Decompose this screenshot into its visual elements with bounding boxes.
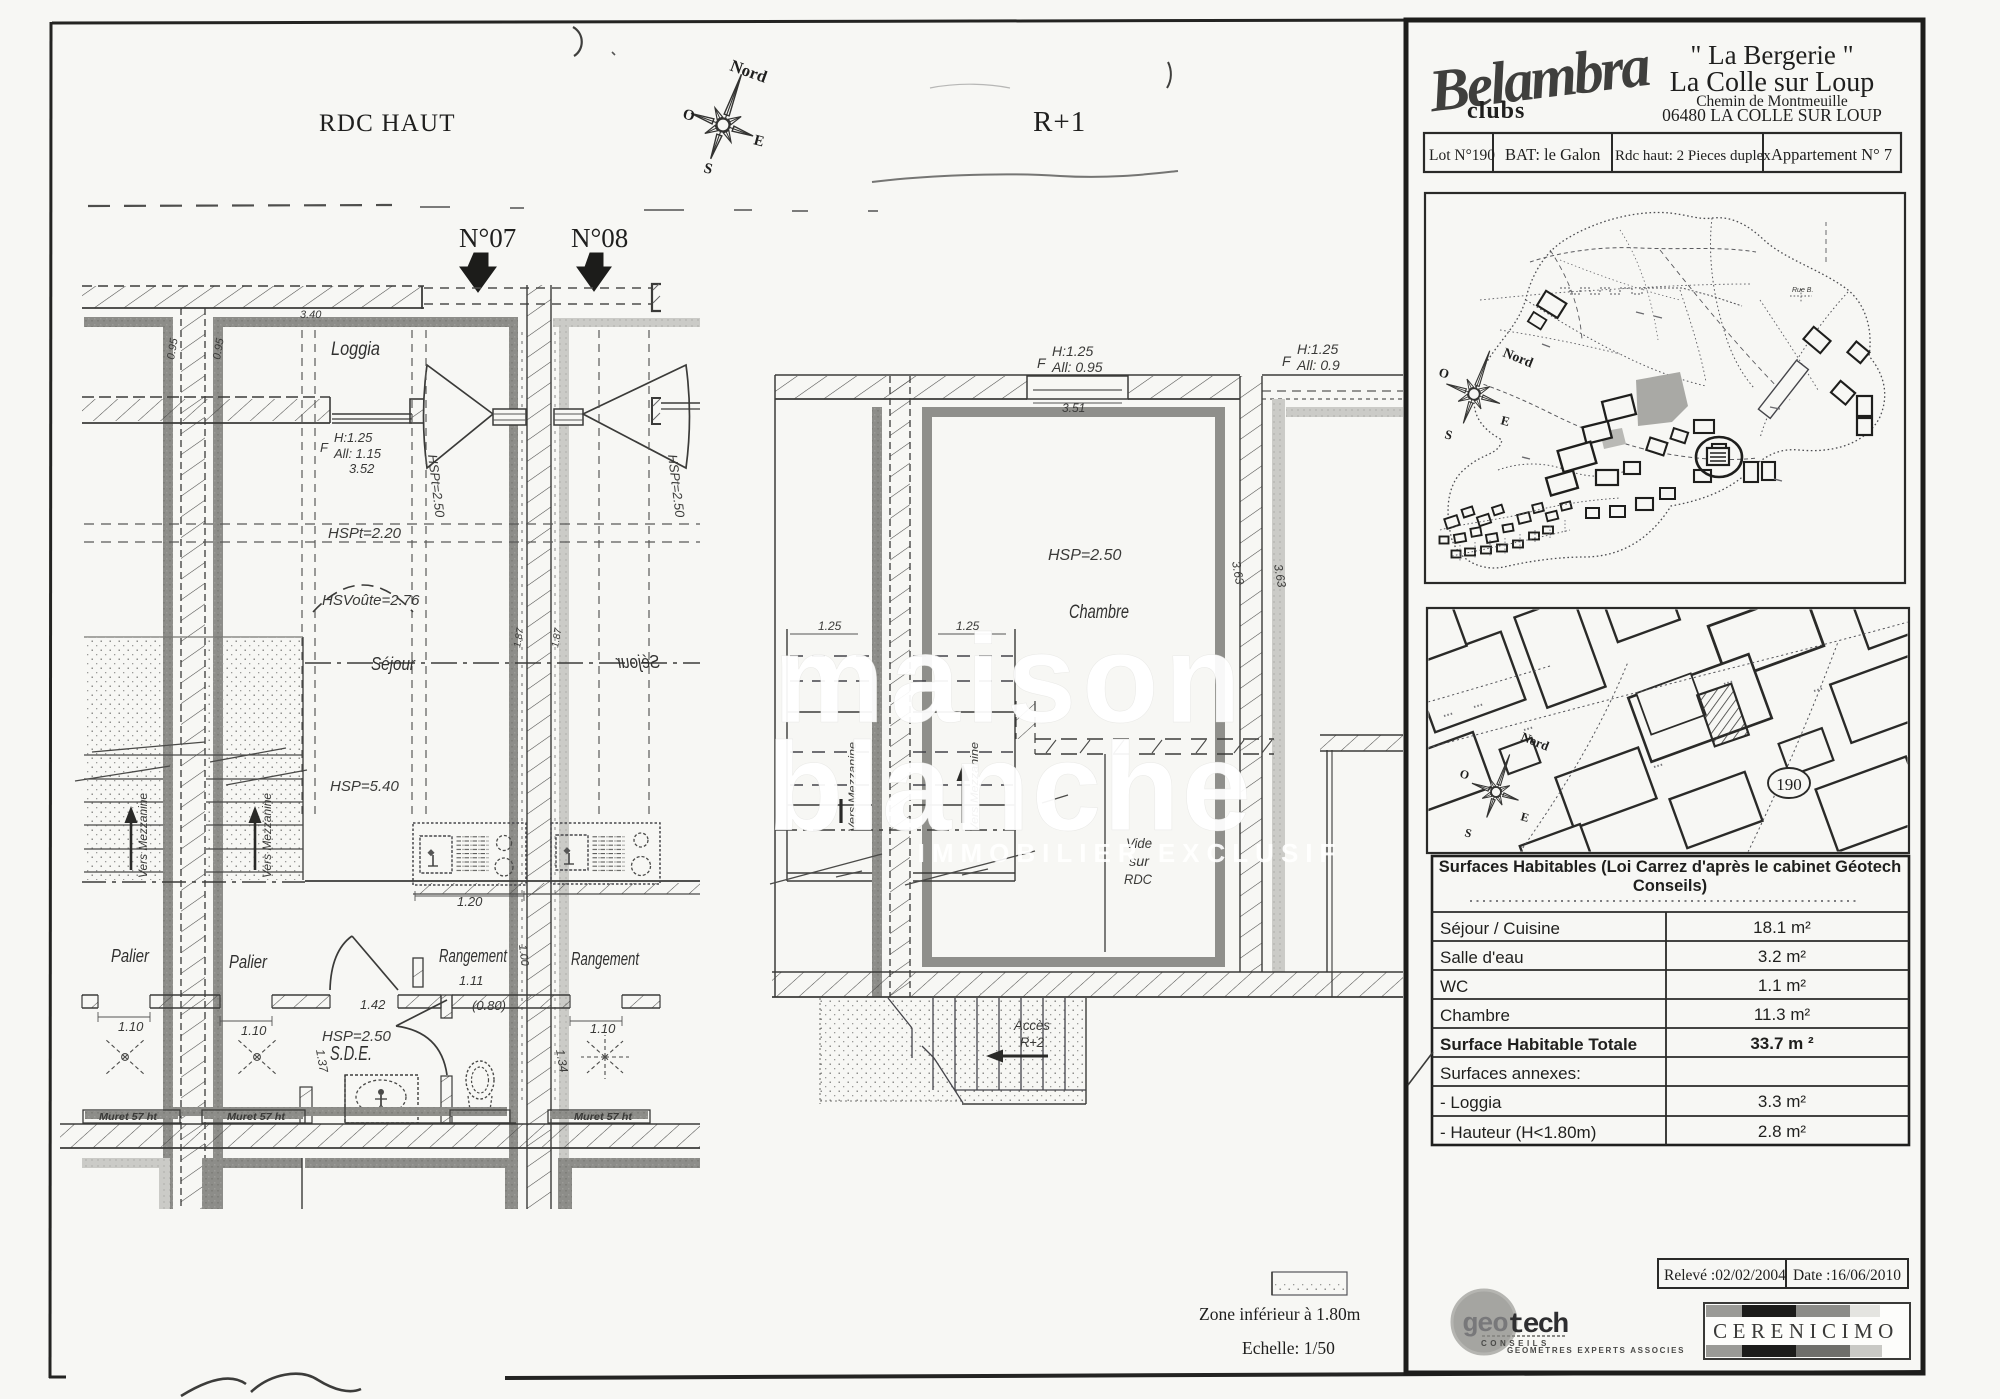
svg-text:1.10: 1.10 <box>241 1023 267 1038</box>
svg-text:1.20: 1.20 <box>457 894 483 909</box>
svg-text:3.40: 3.40 <box>300 309 322 321</box>
svg-text:1.10: 1.10 <box>118 1019 144 1034</box>
svg-text:- Loggia: - Loggia <box>1440 1093 1502 1112</box>
svg-text:2.8 m²: 2.8 m² <box>1758 1122 1807 1141</box>
svg-text:1.1 m²: 1.1 m² <box>1758 976 1807 995</box>
svg-text:Lot N°190: Lot N°190 <box>1429 147 1495 164</box>
svg-text:Zone inférieur à 1.80m: Zone inférieur à 1.80m <box>1199 1304 1361 1324</box>
svg-text:1.42: 1.42 <box>360 997 386 1012</box>
svg-text:Palier: Palier <box>111 946 150 966</box>
svg-text:All: 1.15: All: 1.15 <box>333 446 382 461</box>
svg-text:RDC HAUT: RDC HAUT <box>319 110 456 137</box>
svg-text:Vers Mezzanine: Vers Mezzanine <box>138 793 150 878</box>
svg-text:Palier: Palier <box>229 952 268 972</box>
svg-text:BAT: le Galon: BAT: le Galon <box>1505 145 1600 164</box>
svg-text:N°08: N°08 <box>571 223 628 253</box>
svg-text:F: F <box>320 440 329 455</box>
svg-text:H:1.25: H:1.25 <box>1297 341 1338 357</box>
svg-text:H:1.25: H:1.25 <box>1052 343 1093 359</box>
svg-text:R+1: R+1 <box>1033 106 1086 138</box>
svg-text:Appartement N° 7: Appartement N° 7 <box>1771 145 1892 164</box>
svg-text:Conseils): Conseils) <box>1633 877 1707 895</box>
svg-text:Séjour: Séjour <box>371 654 416 674</box>
svg-text:All: 0.9: All: 0.9 <box>1296 357 1340 373</box>
svg-text:06480 LA COLLE SUR LOUP: 06480 LA COLLE SUR LOUP <box>1662 105 1882 125</box>
svg-text:Relevé :02/02/2004: Relevé :02/02/2004 <box>1664 1267 1786 1284</box>
svg-text:11.3 m²: 11.3 m² <box>1754 1005 1811 1024</box>
svg-text:Rangement: Rangement <box>439 946 508 966</box>
svg-text:3.3 m²: 3.3 m² <box>1758 1092 1807 1111</box>
svg-text:Rangement: Rangement <box>571 949 640 969</box>
svg-text:" La Bergerie ": " La Bergerie " <box>1690 40 1853 70</box>
svg-text:WC: WC <box>1440 977 1468 996</box>
svg-text:Séjour: Séjour <box>615 652 660 672</box>
svg-text:CERENICIMO: CERENICIMO <box>1713 1319 1899 1343</box>
svg-text:Surfaces annexes:: Surfaces annexes: <box>1440 1064 1581 1083</box>
svg-text:Surfaces Habitables (Loi Carre: Surfaces Habitables (Loi Carrez d'après … <box>1439 858 1901 876</box>
svg-text:Séjour / Cuisine: Séjour / Cuisine <box>1440 919 1560 938</box>
svg-text:F: F <box>1282 353 1292 369</box>
svg-text:HSPt=2.20: HSPt=2.20 <box>328 525 402 542</box>
svg-text:S.D.E.: S.D.E. <box>330 1043 372 1065</box>
svg-text:R+2: R+2 <box>1020 1034 1044 1050</box>
svg-text:18.1 m²: 18.1 m² <box>1753 918 1811 937</box>
svg-text:Vers Mezzanine: Vers Mezzanine <box>262 793 274 878</box>
svg-text:- Hauteur (H<1.80m): - Hauteur (H<1.80m) <box>1440 1123 1596 1142</box>
svg-text:190: 190 <box>1776 775 1802 794</box>
svg-text:Muret 57 ht: Muret 57 ht <box>227 1112 286 1123</box>
svg-text:GEOMETRES EXPERTS ASSOCIES: GEOMETRES EXPERTS ASSOCIES <box>1507 1346 1685 1355</box>
svg-text:RDC: RDC <box>1124 871 1153 887</box>
svg-text:Date :16/06/2010: Date :16/06/2010 <box>1793 1267 1901 1284</box>
svg-text:1.11: 1.11 <box>459 973 483 988</box>
svg-text:Accès: Accès <box>1013 1017 1050 1033</box>
svg-text:F: F <box>1037 355 1047 371</box>
svg-text:blanche: blanche <box>767 718 1253 857</box>
svg-text:IMMOBILIER EXCLUSIF: IMMOBILIER EXCLUSIF <box>918 838 1343 868</box>
svg-text:HSP=2.50: HSP=2.50 <box>1048 547 1121 564</box>
svg-text:H:1.25: H:1.25 <box>334 430 373 445</box>
svg-text:1.10: 1.10 <box>590 1021 616 1036</box>
svg-text:(0.80): (0.80) <box>472 998 506 1013</box>
svg-text:Surface Habitable Totale: Surface Habitable Totale <box>1440 1035 1637 1054</box>
svg-text:Muret 57 ht: Muret 57 ht <box>99 1112 158 1123</box>
svg-text:HSP=5.40: HSP=5.40 <box>330 778 399 795</box>
svg-text:Rdc haut: 2 Pieces duplex: Rdc haut: 2 Pieces duplex <box>1615 148 1771 164</box>
svg-text:clubs: clubs <box>1467 98 1525 124</box>
svg-text:Loggia: Loggia <box>331 339 380 360</box>
svg-text:All: 0.95: All: 0.95 <box>1051 359 1103 375</box>
svg-text:HSVoûte=2.76: HSVoûte=2.76 <box>322 592 420 609</box>
svg-text:Rue B.: Rue B. <box>1792 287 1813 294</box>
svg-text:3.2 m²: 3.2 m² <box>1758 947 1807 966</box>
svg-text:Salle d'eau: Salle d'eau <box>1440 948 1524 967</box>
svg-text:3.52: 3.52 <box>349 461 375 476</box>
svg-text:Chambre: Chambre <box>1440 1006 1510 1025</box>
svg-text:33.7 m ²: 33.7 m ² <box>1750 1034 1814 1053</box>
svg-text:Muret 57 ht: Muret 57 ht <box>574 1112 633 1123</box>
svg-text:N°07: N°07 <box>459 223 516 253</box>
svg-text:Echelle: 1/50: Echelle: 1/50 <box>1242 1338 1335 1358</box>
